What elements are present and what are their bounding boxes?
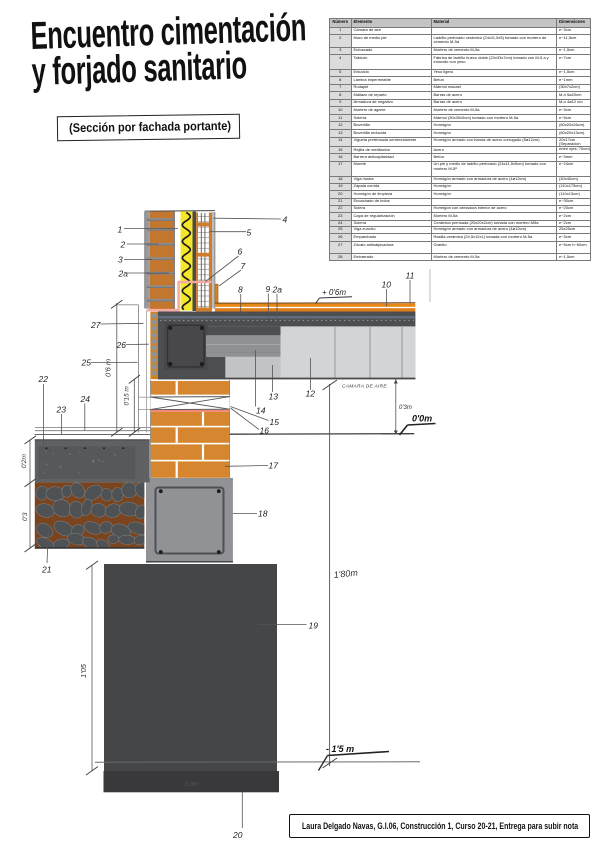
svg-text:1'80m: 1'80m [333,567,359,580]
svg-text:17: 17 [269,461,279,471]
svg-text:13: 13 [269,392,279,402]
svg-text:5: 5 [247,228,252,238]
svg-text:4: 4 [283,215,288,225]
svg-text:21: 21 [41,565,52,575]
svg-text:27: 27 [90,320,101,330]
svg-text:9: 9 [266,284,271,294]
svg-text:22: 22 [38,374,49,384]
svg-text:26: 26 [116,340,127,350]
svg-text:2: 2 [120,240,126,250]
svg-text:8: 8 [238,285,243,295]
svg-text:0'6 m: 0'6 m [104,359,113,377]
svg-text:7: 7 [241,261,246,271]
svg-text:0'3: 0'3 [22,512,29,521]
svg-text:0'15 m: 0'15 m [124,386,131,406]
svg-text:0.8m: 0.8m [185,782,198,788]
svg-text:20: 20 [232,830,243,840]
svg-text:1: 1 [118,225,123,235]
svg-text:+ 0'6m: + 0'6m [322,288,346,297]
svg-text:11: 11 [406,271,415,281]
svg-text:10: 10 [382,280,392,290]
svg-text:16: 16 [260,426,270,436]
svg-text:14: 14 [256,406,266,416]
svg-text:6: 6 [238,247,243,257]
svg-text:1'05: 1'05 [79,663,88,678]
svg-text:0'2m: 0'2m [21,454,28,468]
svg-text:2a: 2a [272,285,283,295]
svg-text:19: 19 [309,621,319,631]
svg-text:23: 23 [56,405,67,415]
svg-text:0'3m: 0'3m [399,405,412,411]
svg-text:15: 15 [270,417,280,427]
svg-text:3: 3 [118,255,123,265]
svg-text:CAMARA DE AIRE: CAMARA DE AIRE [342,384,387,390]
svg-text:18: 18 [258,509,268,519]
svg-text:0'0m: 0'0m [412,414,432,424]
svg-text:2a: 2a [118,269,129,279]
svg-text:12: 12 [306,389,316,399]
svg-text:- 1'5 m: - 1'5 m [326,744,354,754]
svg-text:24: 24 [80,394,91,404]
svg-text:25: 25 [81,358,92,368]
